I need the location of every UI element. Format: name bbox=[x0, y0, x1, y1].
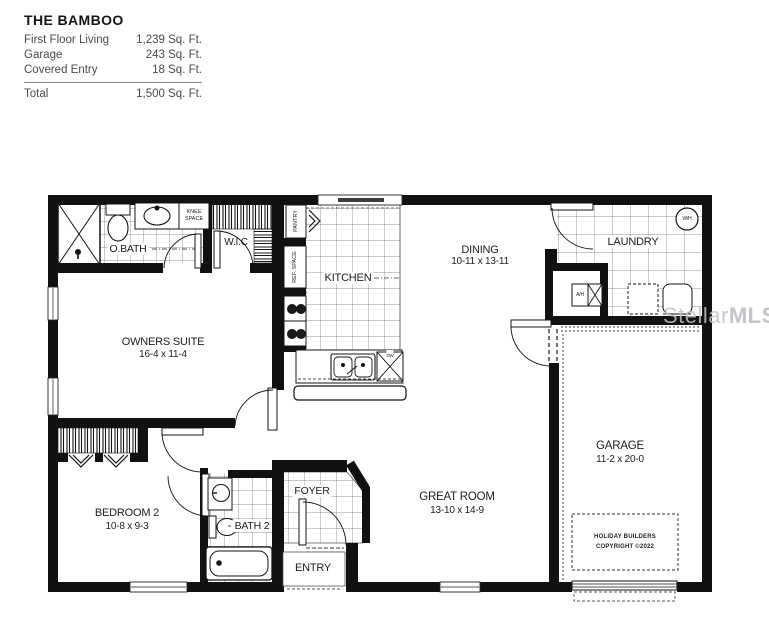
watermark-part1: Stellar bbox=[663, 303, 729, 328]
knee-space-label-line2: SPACE bbox=[185, 213, 203, 225]
air-handler-label: A/H bbox=[576, 289, 584, 301]
floor-plan-page: { "header": { "title": "THE BAMBOO", "ro… bbox=[0, 0, 769, 633]
room-label-entry: ENTRY bbox=[295, 562, 331, 574]
room-label-foyer: FOYER bbox=[292, 485, 331, 497]
room-label-bath2: BATH 2 bbox=[233, 520, 272, 532]
room-dims-garage: 11-2 x 20-0 bbox=[596, 454, 644, 466]
room-label-garage: GARAGE bbox=[596, 440, 644, 452]
stellar-mls-watermark: StellarMLS bbox=[663, 303, 769, 329]
room-label-kitchen: KITCHEN bbox=[323, 272, 374, 284]
shower-fixture bbox=[58, 203, 100, 265]
room-label-obath: O.BATH bbox=[107, 243, 148, 255]
watermark-part2: MLS bbox=[729, 303, 769, 328]
ref-space-label: REF. SPACE bbox=[289, 251, 301, 283]
builder-copyright-line2: COPYRIGHT ©2022 bbox=[596, 541, 654, 553]
dishwasher-label: DW bbox=[386, 350, 393, 362]
room-label-bedroom2: BEDROOM 2 bbox=[95, 507, 159, 519]
room-dims-great-room: 13-10 x 14-9 bbox=[430, 505, 484, 517]
room-label-owners-suite: OWNERS SUITE bbox=[122, 336, 205, 348]
room-dims-bedroom2: 10-8 x 9-3 bbox=[105, 521, 148, 533]
room-label-great-room: GREAT ROOM bbox=[419, 491, 495, 503]
room-label-wic: W.I.C bbox=[224, 237, 247, 249]
room-label-laundry: LAUNDRY bbox=[606, 236, 661, 248]
room-dims-owners-suite: 16-4 x 11-4 bbox=[139, 349, 187, 361]
water-heater-label: W/H bbox=[682, 213, 691, 225]
room-dims-dining: 10-11 x 13-11 bbox=[451, 256, 509, 268]
room-label-dining: DINING bbox=[461, 244, 498, 256]
pantry-label: PANTRY bbox=[290, 210, 302, 232]
